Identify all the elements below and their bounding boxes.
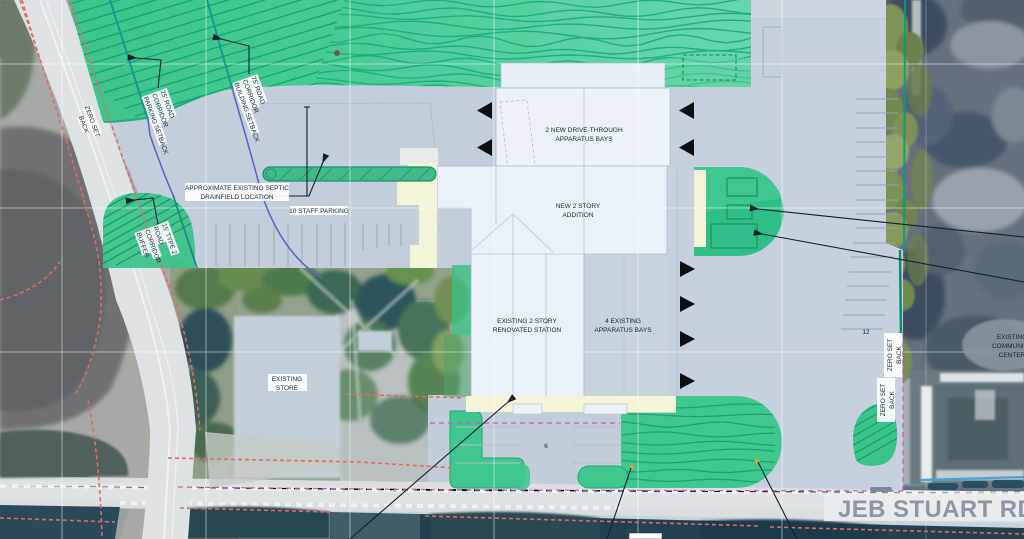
svg-text:2 NEW DRIVE-THROUGH: 2 NEW DRIVE-THROUGH (545, 127, 623, 134)
svg-text:RENOVATED STATION: RENOVATED STATION (493, 327, 562, 334)
svg-text:ZERO SET: ZERO SET (887, 339, 894, 372)
svg-text:12: 12 (862, 329, 870, 336)
svg-text:JEB STUART RD: JEB STUART RD (838, 496, 1024, 523)
svg-text:ADDITION: ADDITION (562, 212, 593, 219)
svg-text:APPROXIMATE EXISTING SEPTIC: APPROXIMATE EXISTING SEPTIC (185, 185, 289, 192)
svg-text:NEW 2 STORY: NEW 2 STORY (556, 203, 601, 210)
svg-text:EXISTING: EXISTING (997, 334, 1024, 341)
svg-text:EXISTING 2 STORY: EXISTING 2 STORY (497, 318, 557, 325)
svg-text:ZERO SET: ZERO SET (880, 384, 887, 417)
svg-text:6: 6 (544, 443, 548, 450)
svg-text:COMMUNITY: COMMUNITY (992, 343, 1024, 350)
svg-text:STORE: STORE (276, 385, 299, 392)
svg-text:BACK: BACK (889, 390, 896, 408)
svg-text:APPARATUS BAYS: APPARATUS BAYS (594, 327, 652, 334)
svg-text:EXISTING: EXISTING (272, 376, 302, 383)
svg-text:CENTER: CENTER (999, 352, 1024, 359)
svg-text:10 STAFF PARKING: 10 STAFF PARKING (289, 208, 349, 215)
svg-text:BACK: BACK (896, 345, 903, 363)
svg-text:4 EXISTING: 4 EXISTING (605, 318, 641, 325)
svg-text:DRAINFIELD LOCATION: DRAINFIELD LOCATION (200, 194, 274, 201)
svg-text:APPARATUS BAYS: APPARATUS BAYS (555, 136, 613, 143)
